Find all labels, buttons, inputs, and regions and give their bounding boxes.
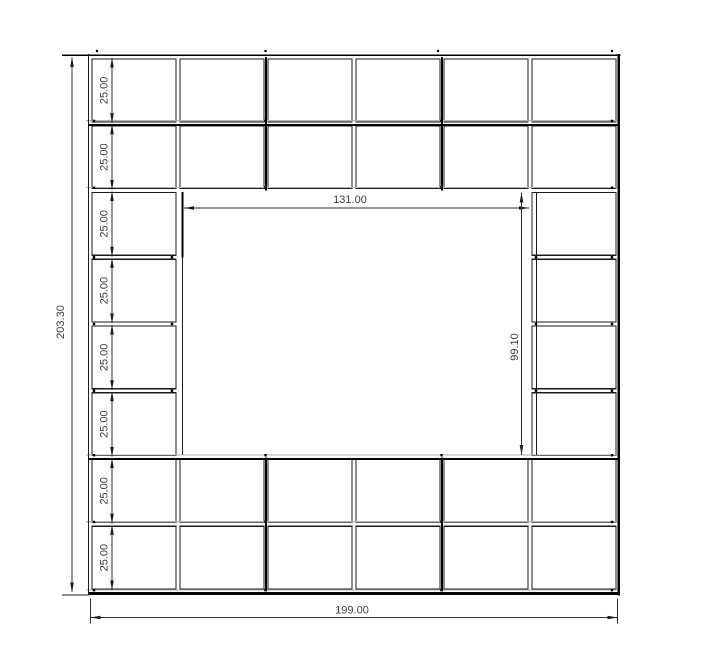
- connector-dot: [264, 187, 266, 189]
- connector-dot: [171, 256, 173, 258]
- connector-dot: [440, 521, 442, 523]
- dimension-arrow: [70, 583, 74, 593]
- dimension-arrow: [70, 57, 74, 67]
- connector-dot: [264, 589, 266, 591]
- grid-cell: [180, 126, 264, 189]
- dim-row-height-label: 25.00: [98, 77, 110, 105]
- connector-dot: [171, 323, 173, 325]
- grid-cell: [268, 59, 352, 122]
- grid-cell: [356, 126, 440, 189]
- grid-cell: [356, 59, 440, 122]
- grid-cell: [532, 193, 616, 256]
- connector-dot: [440, 187, 442, 189]
- grid-cell: [444, 460, 528, 523]
- grid-cell: [356, 526, 440, 589]
- connector-dot: [93, 187, 95, 189]
- connector-dot: [611, 390, 613, 392]
- dim-total-width-label: 199.00: [335, 604, 369, 616]
- frame-front-view-drawing: 25.0025.0025.0025.0025.0025.0025.0025.00…: [0, 0, 705, 659]
- connector-dot: [535, 256, 537, 258]
- connector-dot: [93, 256, 95, 258]
- grid-cell: [180, 526, 264, 589]
- dimension-arrow: [520, 193, 524, 203]
- connector-dot: [440, 454, 442, 456]
- connector-dot: [611, 454, 613, 456]
- dimension-arrow: [520, 445, 524, 455]
- connector-dot: [535, 390, 537, 392]
- grid-cell: [532, 59, 616, 122]
- grid-cell: [532, 126, 616, 189]
- connector-dot: [440, 589, 442, 591]
- grid-cell: [532, 259, 616, 322]
- connector-dot: [611, 50, 613, 52]
- grid-cells-layer: [92, 59, 616, 589]
- grid-cell: [444, 59, 528, 122]
- connector-dot: [96, 50, 98, 52]
- connector-dot: [264, 120, 266, 122]
- dimension-arrow: [608, 616, 618, 620]
- dim-opening-height-label: 99.10: [509, 333, 521, 361]
- connector-dot: [93, 390, 95, 392]
- connector-dot: [93, 323, 95, 325]
- dim-row-height-label: 25.00: [98, 277, 110, 305]
- connector-dot: [264, 454, 266, 456]
- dim-row-height-label: 25.00: [98, 477, 110, 505]
- grid-cell: [268, 126, 352, 189]
- dim-opening-width-label: 131.00: [333, 194, 367, 206]
- grid-cell: [532, 393, 616, 456]
- grid-cell: [532, 326, 616, 389]
- dim-total-height-label: 203.30: [55, 305, 67, 339]
- dim-row-height-label: 25.00: [98, 210, 110, 238]
- connector-dot: [440, 120, 442, 122]
- grid-cell: [532, 526, 616, 589]
- connector-dot: [93, 521, 95, 523]
- grid-cell: [180, 59, 264, 122]
- dimension-arrow: [519, 206, 529, 210]
- dim-row-height-label: 25.00: [98, 143, 110, 171]
- connector-dot: [611, 521, 613, 523]
- connector-dot: [611, 589, 613, 591]
- dim-row-height-label: 25.00: [98, 410, 110, 438]
- grid-cell: [444, 126, 528, 189]
- dimension-arrow: [184, 206, 194, 210]
- grid-cell: [268, 526, 352, 589]
- grid-cell: [532, 460, 616, 523]
- connector-dot: [264, 521, 266, 523]
- connector-dot: [171, 390, 173, 392]
- connector-dot: [264, 50, 266, 52]
- dim-row-height-label: 25.00: [98, 344, 110, 372]
- grid-cell: [268, 460, 352, 523]
- connector-dot: [535, 323, 537, 325]
- grid-cell: [180, 460, 264, 523]
- dimension-arrow: [91, 616, 101, 620]
- grid-cell: [444, 526, 528, 589]
- connector-dot: [611, 323, 613, 325]
- grid-cell: [356, 460, 440, 523]
- connector-dot: [93, 454, 95, 456]
- connector-dot: [611, 187, 613, 189]
- connector-dot: [437, 50, 439, 52]
- cad-drawing-page: 25.0025.0025.0025.0025.0025.0025.0025.00…: [0, 0, 705, 659]
- connector-dot: [93, 120, 95, 122]
- dim-row-height-label: 25.00: [98, 544, 110, 572]
- connector-dot: [611, 256, 613, 258]
- connector-dot: [611, 120, 613, 122]
- connector-dot: [93, 589, 95, 591]
